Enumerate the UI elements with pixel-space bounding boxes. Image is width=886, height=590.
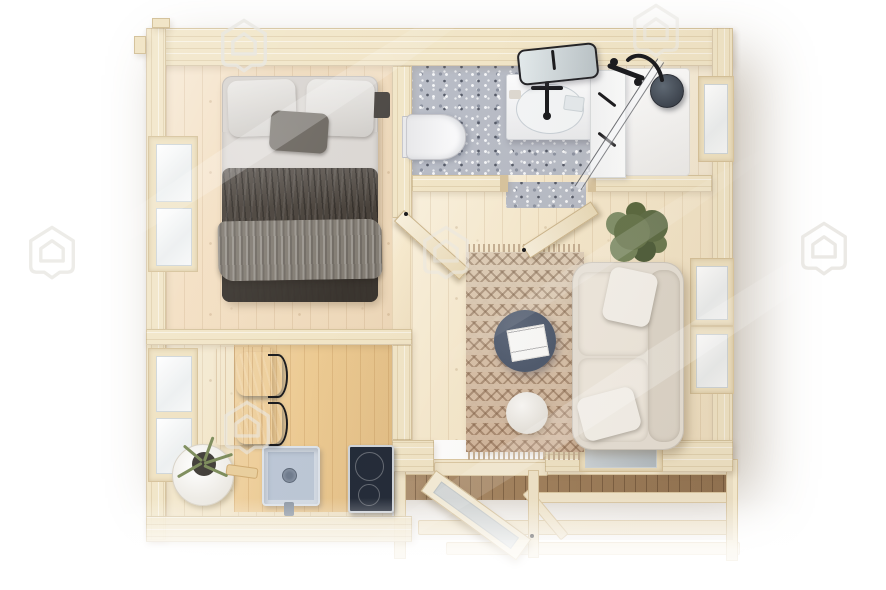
bottom-white-fade	[0, 498, 886, 590]
shower-fixture	[598, 38, 688, 98]
deck-post-middle	[528, 470, 539, 558]
watermark-house-logo	[796, 220, 852, 276]
bathroom-door-jamb	[500, 175, 508, 192]
bedroom-door-hinge	[404, 212, 408, 216]
kitchen-front-wall	[146, 516, 412, 542]
living-window-pane	[696, 266, 728, 320]
open-magazine	[507, 324, 550, 362]
bathroom-door-hinge	[522, 248, 526, 252]
bedroom-window-pane	[156, 208, 192, 266]
kitchen-east-wall	[392, 345, 412, 440]
log-corner-tab	[134, 36, 146, 54]
bathroom-window-pane	[704, 84, 728, 154]
cabin-floor-plan-render	[0, 0, 886, 590]
folded-towel	[563, 95, 585, 113]
faucet-crossbar	[531, 86, 563, 90]
knit-throw	[217, 219, 382, 282]
log-corner-tab	[152, 18, 170, 28]
dining-chair	[236, 352, 282, 396]
dining-chair	[236, 400, 282, 444]
accent-pillow	[269, 110, 330, 154]
front-wall-segment	[392, 440, 434, 472]
round-pouf	[506, 392, 548, 434]
soap-dish	[509, 90, 521, 99]
bedside-object	[372, 92, 390, 118]
deck-mid-rail	[530, 492, 738, 503]
faucet-spout-dot	[543, 112, 551, 120]
deck-post-left	[394, 459, 406, 559]
bedroom-south-wall	[146, 329, 412, 345]
sink-drain	[282, 468, 297, 483]
deck-post-right	[726, 459, 738, 561]
hob-burner-small	[358, 484, 380, 506]
living-window-pane	[696, 334, 728, 388]
toilet	[406, 114, 466, 160]
hob-burner-large	[355, 452, 384, 481]
sink-faucet	[284, 502, 294, 516]
kitchen-window-pane	[156, 356, 192, 412]
bathroom-south-wall-left	[412, 175, 508, 192]
bedroom-window-pane	[156, 144, 192, 202]
front-door-hinge	[530, 534, 534, 538]
watermark-house-logo	[24, 224, 80, 280]
deck-lower-rail	[446, 542, 740, 555]
potted-plant-living	[614, 214, 650, 250]
